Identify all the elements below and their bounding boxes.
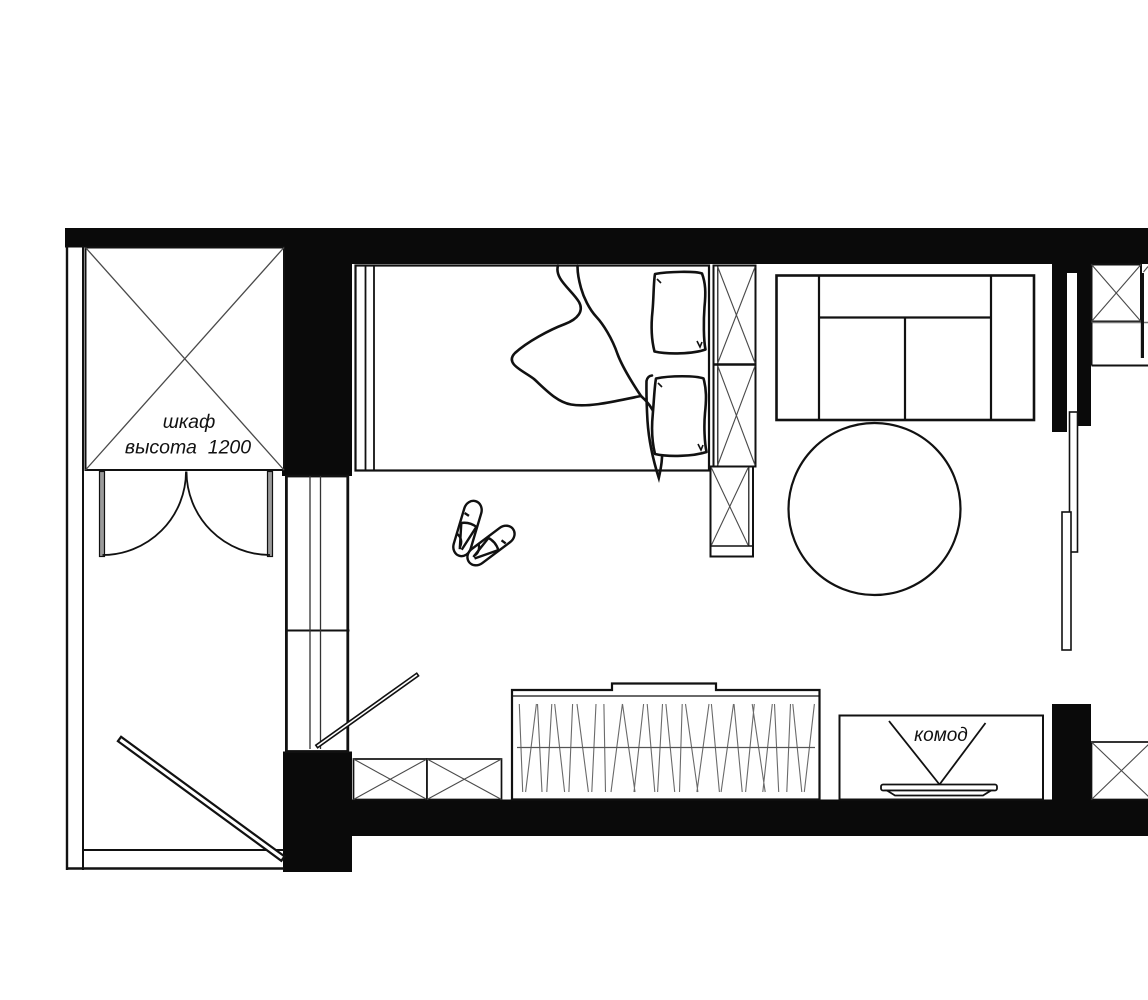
svg-text:высота 1200: высота 1200: [125, 437, 251, 459]
svg-text:комод: комод: [914, 725, 968, 746]
svg-text:шкаф: шкаф: [163, 411, 216, 433]
